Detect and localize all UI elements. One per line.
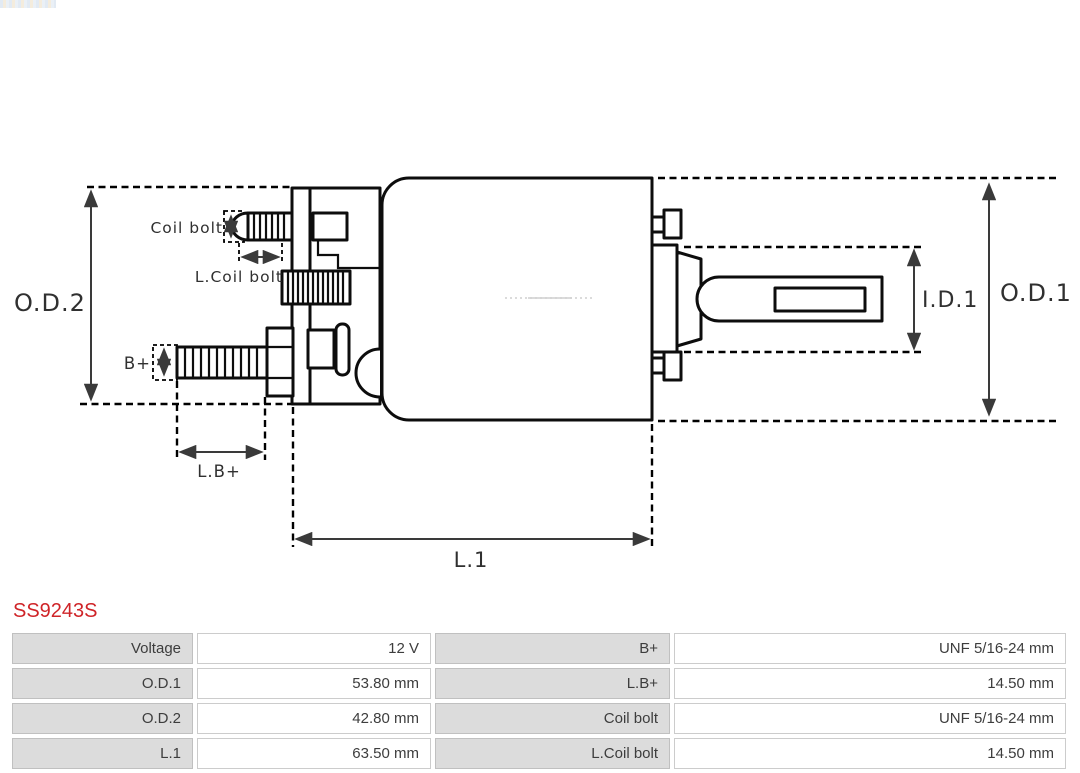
- spec-label: O.D.1: [12, 668, 193, 699]
- coil-bolt: [232, 213, 292, 240]
- coil-bolt-bushing: [282, 271, 350, 304]
- spec-value: UNF 5/16-24 mm: [674, 633, 1066, 664]
- id1-label: I.D.1: [922, 288, 978, 313]
- od2-label: O.D.2: [14, 289, 86, 317]
- l-coil-bolt-label: L.Coil bolt: [195, 268, 283, 286]
- spec-value: 14.50 mm: [674, 738, 1066, 769]
- spec-label: Coil bolt: [435, 703, 670, 734]
- l-b-plus-label: L.B+: [197, 462, 241, 481]
- solenoid-dimension-diagram: O.D.2 Coil bolt L.Coil bolt B+ L.B+ L.1 …: [0, 0, 1080, 595]
- table-row: O.D.2 42.80 mm Coil bolt UNF 5/16-24 mm: [12, 703, 1066, 734]
- terminal-top: [664, 210, 681, 238]
- spec-value: 12 V: [197, 633, 431, 664]
- spec-label: L.1: [12, 738, 193, 769]
- spec-value: UNF 5/16-24 mm: [674, 703, 1066, 734]
- spec-value: 63.50 mm: [197, 738, 431, 769]
- b-plus-terminal-bolt: [177, 328, 293, 396]
- spec-label: O.D.2: [12, 703, 193, 734]
- l1-label: L.1: [454, 548, 489, 572]
- spec-label: L.B+: [435, 668, 670, 699]
- plunger-assembly: [652, 210, 882, 380]
- solenoid-body: [382, 178, 652, 420]
- b-plus-label: B+: [124, 354, 151, 373]
- spec-label: B+: [435, 633, 670, 664]
- plunger-slot: [775, 288, 865, 311]
- solenoid-drawing: O.D.2 Coil bolt L.Coil bolt B+ L.B+ L.1 …: [0, 0, 1080, 595]
- table-row: Voltage 12 V B+ UNF 5/16-24 mm: [12, 633, 1066, 664]
- spec-label: Voltage: [12, 633, 193, 664]
- part-number: SS9243S: [13, 601, 1080, 621]
- table-row: L.1 63.50 mm L.Coil bolt 14.50 mm: [12, 738, 1066, 769]
- coil-bolt-label: Coil bolt: [150, 219, 223, 237]
- terminal-bottom: [664, 352, 681, 380]
- table-row: O.D.1 53.80 mm L.B+ 14.50 mm: [12, 668, 1066, 699]
- spec-value: 53.80 mm: [197, 668, 431, 699]
- spec-table: Voltage 12 V B+ UNF 5/16-24 mm O.D.1 53.…: [8, 629, 1070, 773]
- spec-value: 14.50 mm: [674, 668, 1066, 699]
- spec-value: 42.80 mm: [197, 703, 431, 734]
- end-cap: [652, 245, 677, 352]
- spec-label: L.Coil bolt: [435, 738, 670, 769]
- od1-label: O.D.1: [1000, 279, 1072, 307]
